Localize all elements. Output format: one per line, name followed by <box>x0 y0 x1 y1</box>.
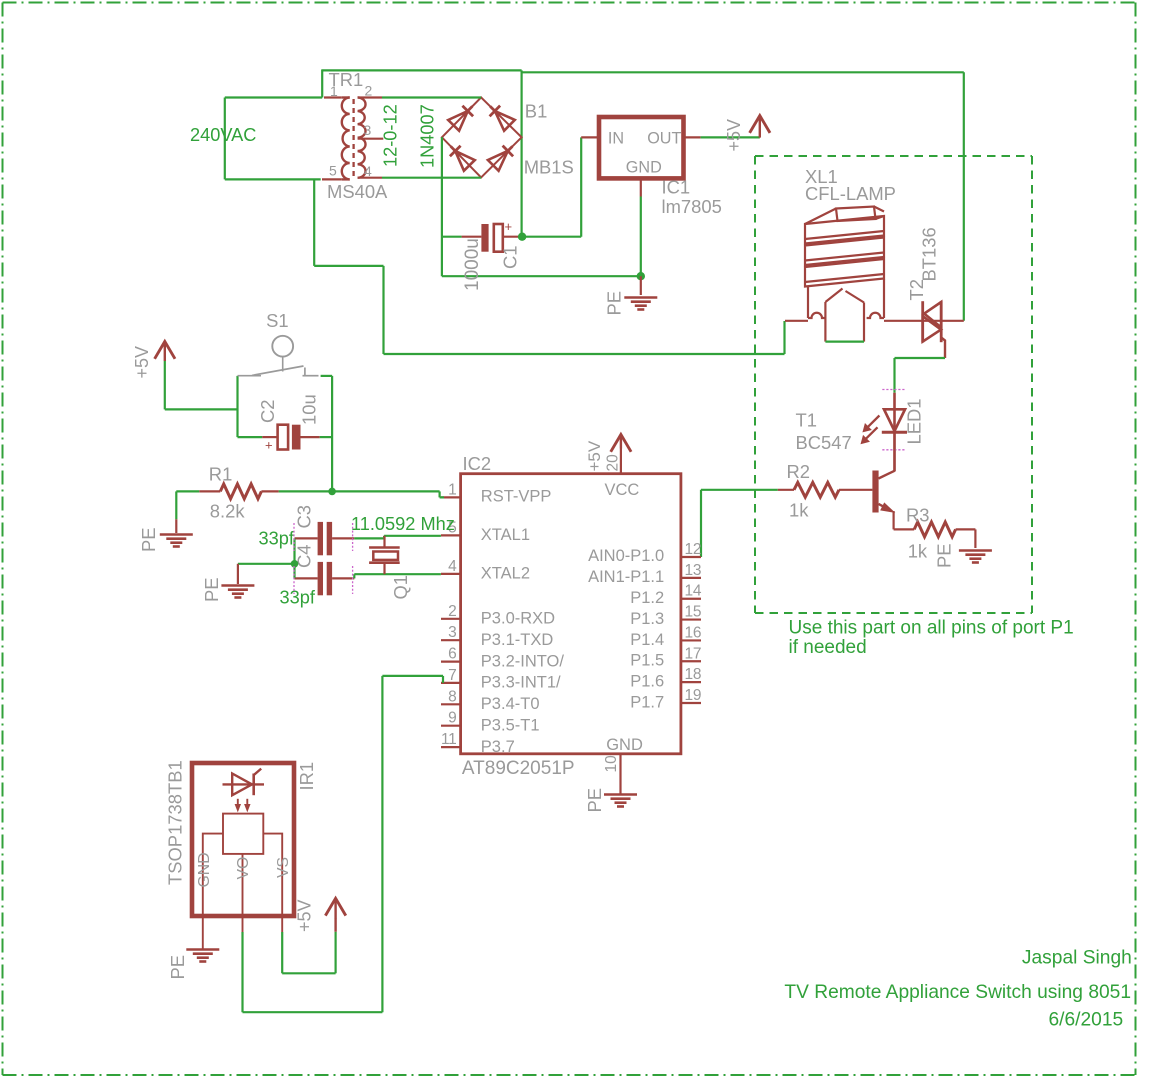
svg-text:P3.0-RXD: P3.0-RXD <box>481 610 555 628</box>
svg-text:P1.7: P1.7 <box>630 693 664 711</box>
svg-text:240VAC: 240VAC <box>190 125 256 145</box>
svg-text:17: 17 <box>685 645 702 662</box>
svg-text:+: + <box>265 438 273 453</box>
svg-text:1k: 1k <box>908 541 928 562</box>
svg-text:2: 2 <box>365 83 373 99</box>
svg-text:15: 15 <box>685 604 702 621</box>
svg-text:2: 2 <box>448 603 456 620</box>
svg-text:1: 1 <box>330 83 338 99</box>
svg-text:R1: R1 <box>209 463 233 484</box>
svg-text:AIN0-P1.0: AIN0-P1.0 <box>588 547 664 565</box>
svg-text:VO: VO <box>235 857 252 880</box>
svg-text:Use this part on all pins of p: Use this part on all pins of port P1 <box>789 618 1074 639</box>
svg-text:9: 9 <box>448 710 456 727</box>
svg-text:lm7805: lm7805 <box>662 196 722 217</box>
svg-text:P3.5-T1: P3.5-T1 <box>481 717 540 735</box>
svg-text:PE: PE <box>201 577 222 602</box>
svg-text:VS: VS <box>275 857 292 878</box>
svg-text:+5V: +5V <box>585 440 604 471</box>
svg-text:C2: C2 <box>257 399 278 423</box>
svg-text:PE: PE <box>167 955 188 980</box>
svg-text:XTAL1: XTAL1 <box>481 526 530 544</box>
svg-text:14: 14 <box>685 583 702 600</box>
svg-text:P3.7: P3.7 <box>481 738 515 756</box>
svg-text:7: 7 <box>448 667 456 684</box>
svg-text:IR1: IR1 <box>296 762 317 791</box>
svg-text:Q1: Q1 <box>390 575 411 600</box>
svg-text:IN: IN <box>608 130 624 148</box>
svg-text:PE: PE <box>138 527 159 552</box>
svg-text:CFL-LAMP: CFL-LAMP <box>805 183 896 204</box>
svg-text:IC1: IC1 <box>662 177 691 198</box>
svg-text:18: 18 <box>685 666 702 683</box>
svg-text:+5V: +5V <box>132 346 152 379</box>
svg-text:P3.3-INT1/: P3.3-INT1/ <box>481 674 561 692</box>
svg-text:LED1: LED1 <box>904 398 925 444</box>
svg-text:11.0592 Mhz: 11.0592 Mhz <box>351 514 455 534</box>
svg-text:P3.2-INTO/: P3.2-INTO/ <box>481 652 565 670</box>
svg-text:16: 16 <box>685 624 702 641</box>
svg-text:33pf: 33pf <box>280 588 316 608</box>
svg-text:C1: C1 <box>500 245 521 269</box>
svg-text:6: 6 <box>448 646 456 663</box>
svg-text:P3.4-T0: P3.4-T0 <box>481 695 540 713</box>
svg-text:PE: PE <box>584 788 605 813</box>
svg-text:if needed: if needed <box>789 637 867 658</box>
svg-text:Jaspal Singh: Jaspal Singh <box>1022 948 1132 969</box>
svg-text:10: 10 <box>603 755 620 773</box>
svg-text:TSOP1738TB1: TSOP1738TB1 <box>165 760 186 885</box>
svg-text:IC2: IC2 <box>463 453 492 474</box>
svg-text:AT89C2051P: AT89C2051P <box>462 758 575 779</box>
svg-text:T1: T1 <box>796 410 817 431</box>
svg-text:TV Remote Appliance Switch usi: TV Remote Appliance Switch using 8051 <box>784 982 1131 1003</box>
svg-text:PE: PE <box>934 543 955 568</box>
svg-text:1000u: 1000u <box>462 238 483 291</box>
svg-text:PE: PE <box>604 291 625 316</box>
svg-text:P1.2: P1.2 <box>630 589 664 607</box>
svg-text:+5V: +5V <box>295 899 315 932</box>
svg-text:RST-VPP: RST-VPP <box>481 488 552 506</box>
svg-text:5: 5 <box>329 163 337 179</box>
svg-text:10u: 10u <box>299 394 320 425</box>
svg-text:6/6/2015: 6/6/2015 <box>1048 1009 1123 1030</box>
svg-text:1: 1 <box>448 481 456 498</box>
svg-text:GND: GND <box>626 159 662 177</box>
svg-text:4: 4 <box>448 558 457 575</box>
svg-text:B1: B1 <box>525 100 548 121</box>
svg-text:C3: C3 <box>294 505 315 529</box>
svg-text:3: 3 <box>448 624 456 641</box>
svg-text:8.2k: 8.2k <box>210 501 246 522</box>
svg-text:S1: S1 <box>266 310 289 331</box>
svg-text:P1.5: P1.5 <box>630 652 664 670</box>
svg-text:P1.3: P1.3 <box>630 610 664 628</box>
svg-text:BC547: BC547 <box>796 432 852 453</box>
svg-text:+5V: +5V <box>724 119 744 152</box>
svg-text:VCC: VCC <box>605 481 640 499</box>
svg-text:GND: GND <box>196 852 213 887</box>
svg-text:1N4007: 1N4007 <box>418 104 438 168</box>
svg-text:4: 4 <box>364 163 372 179</box>
svg-text:12: 12 <box>685 541 702 558</box>
svg-text:MB1S: MB1S <box>524 157 574 178</box>
svg-text:R2: R2 <box>787 461 811 482</box>
svg-text:P3.1-TXD: P3.1-TXD <box>481 631 554 649</box>
svg-text:13: 13 <box>685 562 702 579</box>
svg-text:+: + <box>505 219 513 234</box>
svg-text:R3: R3 <box>906 505 930 526</box>
svg-text:12-0-12: 12-0-12 <box>381 104 401 167</box>
svg-text:AIN1-P1.1: AIN1-P1.1 <box>588 568 664 586</box>
svg-text:20: 20 <box>605 454 622 472</box>
svg-text:BT136: BT136 <box>919 227 940 281</box>
svg-text:11: 11 <box>441 731 457 748</box>
svg-text:MS40A: MS40A <box>327 181 388 202</box>
svg-text:8: 8 <box>448 688 456 705</box>
svg-text:P1.6: P1.6 <box>630 673 664 691</box>
svg-text:33pf: 33pf <box>259 528 295 548</box>
svg-text:1k: 1k <box>789 500 809 521</box>
svg-text:GND: GND <box>606 736 643 754</box>
svg-text:19: 19 <box>685 687 702 704</box>
svg-text:OUT: OUT <box>647 130 681 148</box>
svg-text:3: 3 <box>364 122 372 138</box>
svg-text:P1.4: P1.4 <box>630 631 664 649</box>
svg-text:XTAL2: XTAL2 <box>481 565 530 583</box>
